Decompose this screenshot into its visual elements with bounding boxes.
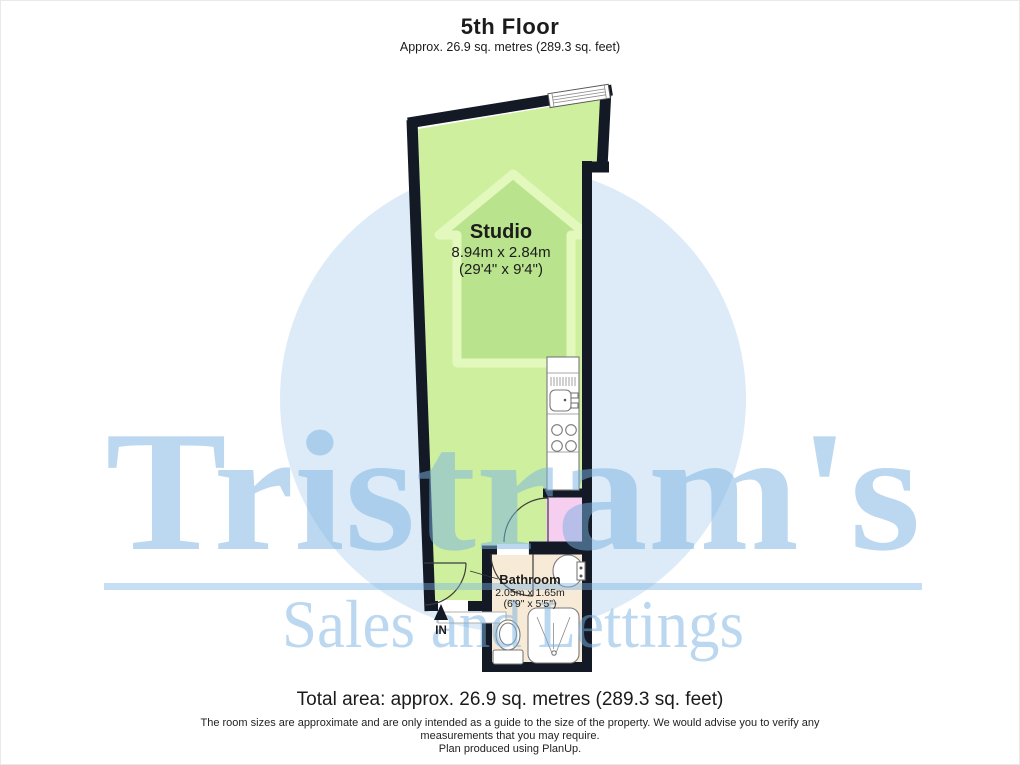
disclaimer-line-3: Plan produced using PlanUp. <box>1 743 1019 755</box>
disclaimer-line-1: The room sizes are approximate and are o… <box>1 717 1019 729</box>
entrance-label: IN <box>435 625 447 637</box>
disclaimer-line-2: measurements that you may require. <box>1 730 1019 742</box>
bathroom-dims-imperial: (6'9" x 5'5") <box>504 598 557 610</box>
studio-dims-imperial: (29'4" x 9'4") <box>459 261 543 278</box>
wall-right-upper <box>602 89 606 168</box>
studio-label: Studio <box>470 221 532 243</box>
total-area-text: Total area: approx. 26.9 sq. metres (289… <box>1 689 1019 711</box>
brand-watermark: Tristram's Sales and Lettings <box>104 397 922 662</box>
floorplan-canvas: Tristram's Sales and Lettings Studio 8.9… <box>1 1 1020 765</box>
studio-dims-metric: 8.94m x 2.84m <box>451 244 550 261</box>
bathroom-label: Bathroom <box>499 572 560 587</box>
watermark-brand-text: Tristram's <box>106 397 921 587</box>
floorplan-page: 5th Floor Approx. 26.9 sq. metres (289.3… <box>0 0 1020 765</box>
